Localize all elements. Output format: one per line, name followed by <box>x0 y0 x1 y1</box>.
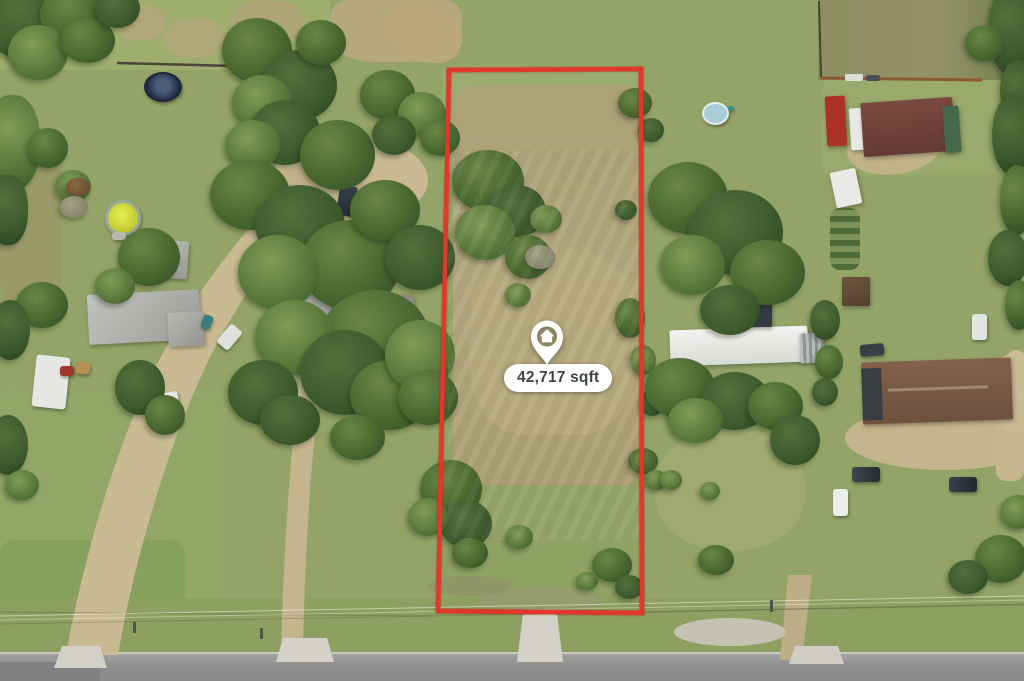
tree <box>408 498 448 536</box>
tree <box>770 415 820 465</box>
concrete-apron-left <box>54 646 107 668</box>
pin-outline <box>531 321 563 367</box>
tree <box>145 395 185 435</box>
rv-red-deck <box>60 366 74 376</box>
dark-suv-right-2 <box>949 477 977 492</box>
brown-roof-house <box>861 357 1013 424</box>
fence-vertical-right <box>819 1 821 77</box>
fence-clutter-dark <box>866 75 880 81</box>
tree <box>372 115 416 155</box>
parcel-tree <box>530 205 562 233</box>
red-trailer <box>825 96 848 147</box>
boundary-bush <box>615 200 637 220</box>
mobile-home-green-trim <box>942 105 961 152</box>
field-bush <box>660 470 682 490</box>
tree <box>700 285 760 335</box>
fence-clutter-white <box>845 74 863 81</box>
dark-suv-right-1 <box>852 467 880 482</box>
concrete-apron-center <box>517 614 563 662</box>
tree <box>965 25 1005 61</box>
tree <box>5 470 39 500</box>
parcel-bush <box>505 525 533 549</box>
tree <box>948 560 988 594</box>
tree <box>660 235 725 295</box>
tree <box>812 378 838 406</box>
parcel-bush <box>505 283 531 307</box>
field-fence-left <box>0 612 430 616</box>
dark-truck-near-house <box>860 343 885 357</box>
tree <box>238 235 318 310</box>
concrete-apron-right <box>789 646 844 664</box>
tree <box>260 395 320 445</box>
field-bush <box>698 545 734 575</box>
tree <box>95 268 135 304</box>
gravel-patch-shoulder <box>674 618 786 646</box>
brown-shed <box>842 277 870 306</box>
gray-roof-house-wing <box>167 311 205 347</box>
boundary-bush <box>618 88 652 118</box>
tree <box>420 120 460 156</box>
tree <box>988 230 1024 286</box>
tree <box>330 415 385 460</box>
disturbed-soil <box>428 576 512 596</box>
white-car-right-edge <box>972 314 987 340</box>
house-garage-dark <box>861 368 883 421</box>
tree <box>398 370 458 425</box>
rv-wood-box <box>75 361 90 374</box>
boundary-bush <box>615 298 645 338</box>
tree <box>810 300 840 340</box>
brush-pile <box>60 196 88 218</box>
brown-shrub <box>66 178 90 196</box>
mobile-home-roof <box>860 97 956 157</box>
tree <box>300 120 375 190</box>
concrete-apron-middle <box>276 638 334 662</box>
tree <box>815 345 843 379</box>
tree <box>668 398 723 443</box>
tree <box>296 20 346 65</box>
garden-rows <box>830 208 860 270</box>
tree <box>28 128 68 168</box>
trampoline <box>144 72 182 102</box>
house-roof-ridge <box>888 385 988 391</box>
house-glyph <box>540 329 555 342</box>
boundary-bush <box>638 118 664 142</box>
field-fence-right <box>643 604 1024 612</box>
aerial-property-photo[interactable]: 42,717 sqft <box>0 0 1024 681</box>
parcel-bush <box>576 572 598 590</box>
rv-trailer <box>31 354 70 409</box>
blue-pool <box>702 102 729 125</box>
parcel-bush <box>615 575 643 599</box>
white-pickup-right <box>833 489 848 516</box>
tree <box>452 538 488 568</box>
tree <box>385 225 455 290</box>
dead-brush <box>525 245 555 269</box>
tree <box>992 95 1024 175</box>
teal-dot <box>728 106 734 111</box>
field-bush <box>700 482 720 500</box>
fence-left-lawn <box>117 63 235 66</box>
tree <box>8 25 68 80</box>
area-label: 42,717 sqft <box>504 364 612 392</box>
